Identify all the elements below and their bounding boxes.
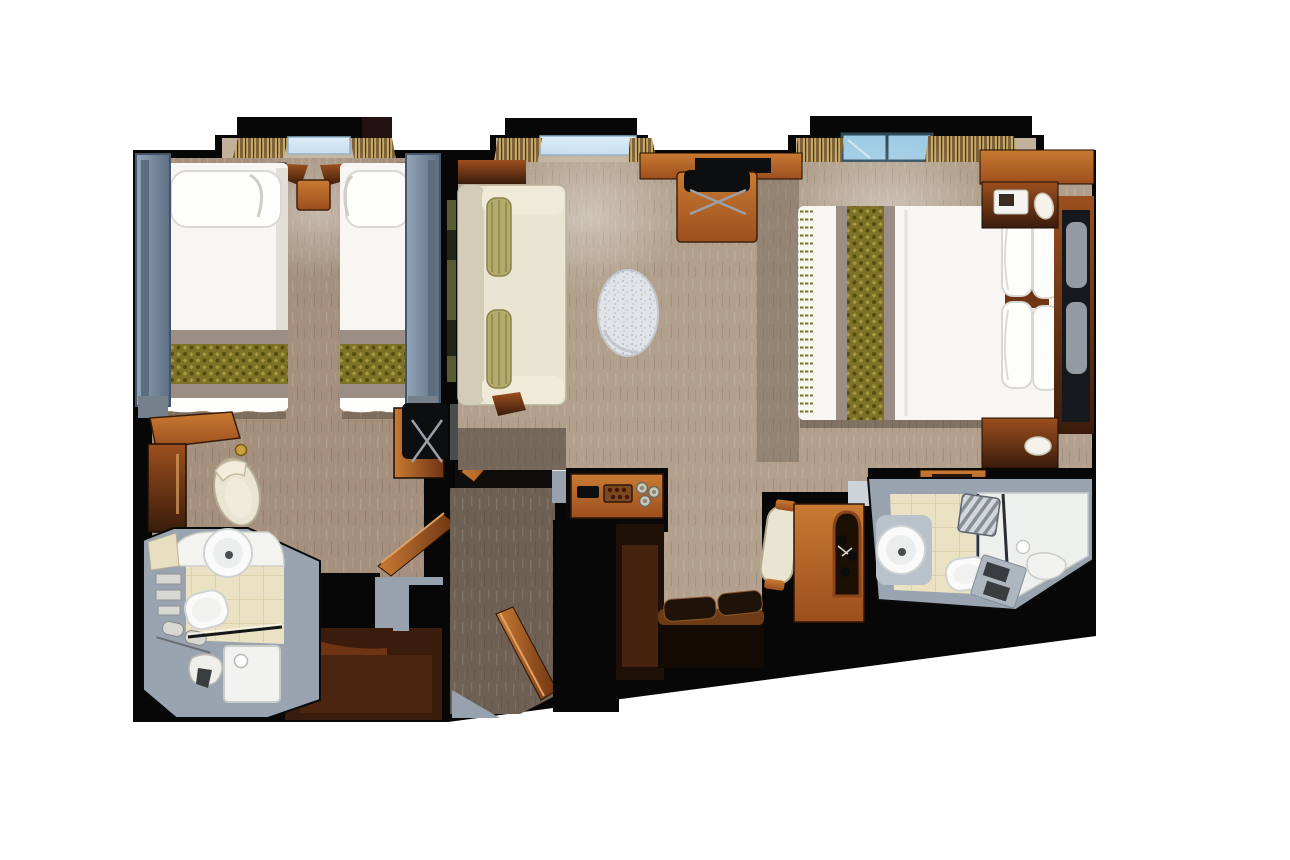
sink (204, 529, 252, 577)
shower-drain (1017, 541, 1030, 554)
bed-fringe (798, 210, 813, 416)
sink (876, 515, 932, 585)
desk-chair (402, 403, 448, 459)
pillow (171, 171, 281, 227)
perfume-bottle (236, 445, 247, 456)
desk-chair (684, 170, 750, 192)
floor-plan (0, 0, 1290, 860)
bathroom-left (143, 528, 320, 718)
runner-mauve (164, 384, 288, 398)
floor-plan-canvas (0, 0, 1290, 860)
towel-shelf (156, 574, 181, 615)
sofa (458, 185, 566, 405)
nightstand-top (982, 182, 1058, 228)
suite-closet (616, 524, 664, 680)
nightstand (297, 180, 330, 210)
drinks-tray (604, 485, 632, 502)
headboard-ledge (980, 150, 1094, 184)
runner-mauve (884, 206, 895, 420)
master-bed (798, 206, 1062, 428)
headboard-wall (1054, 196, 1094, 434)
shower-drain (235, 655, 248, 668)
twin-bed-1 (164, 163, 288, 419)
runner-mauve (164, 330, 288, 344)
runner-mauve (836, 206, 847, 420)
nightstand-bottom (982, 418, 1058, 468)
twin-stateroom (136, 140, 456, 720)
side-desk (394, 403, 448, 478)
luggage-bench (658, 590, 764, 668)
remote (577, 486, 599, 498)
lamp (1025, 437, 1051, 455)
rolled-towels (958, 494, 1001, 537)
bed-side-panel (136, 154, 170, 418)
window-ledge (458, 160, 526, 184)
pillow (346, 171, 408, 227)
writing-desk (677, 170, 757, 242)
bed-side-panel (406, 154, 440, 418)
twin-bed-2 (340, 163, 412, 419)
oval-rug (598, 270, 658, 356)
